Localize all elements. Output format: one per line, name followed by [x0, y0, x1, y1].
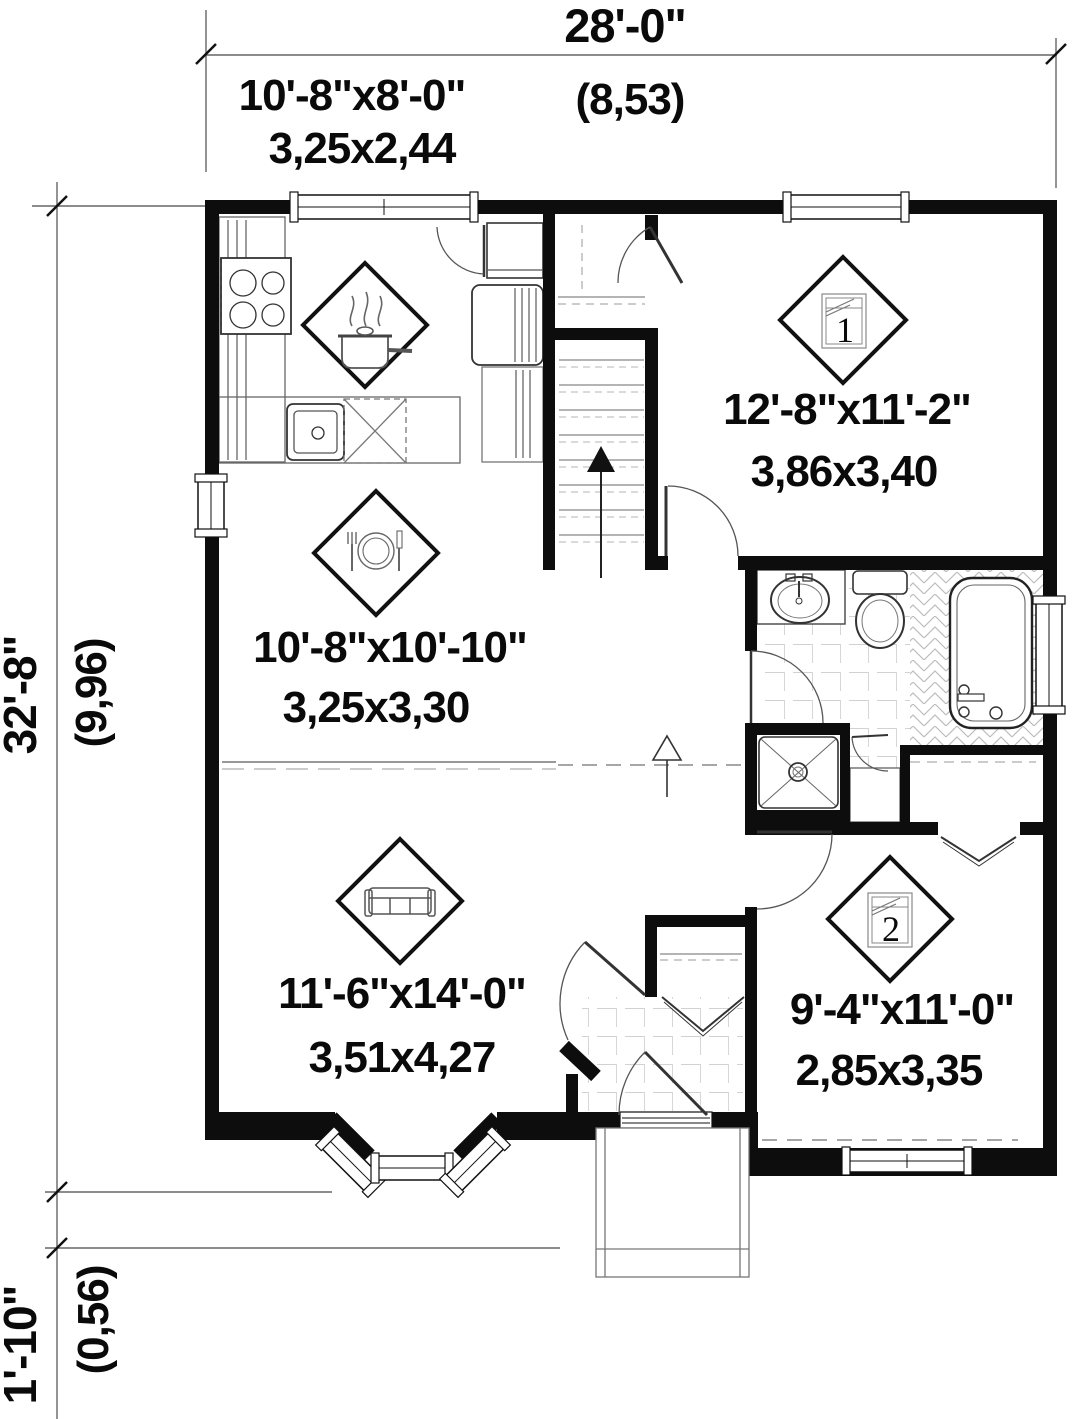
bedroom1-size-imperial: 12'-8"x11'-2" — [723, 385, 971, 434]
bedroom1-size-metric: 3,86x3,40 — [751, 447, 938, 496]
stair-wall — [645, 328, 658, 570]
bedroom2-door — [757, 832, 832, 909]
bathroom-sink — [757, 570, 845, 624]
bedroom2-room-icon: 2 — [828, 857, 952, 981]
dining-size-imperial: 10'-8"x10'-10" — [253, 623, 527, 672]
overall-width-imperial: 28'-0" — [564, 0, 686, 52]
bedroom2-size-metric: 2,85x3,35 — [796, 1046, 983, 1095]
front-door-sill — [620, 1112, 712, 1128]
stairs-up-arrow-icon — [587, 446, 615, 578]
floor-plan-page: 1 2 28'-0" (8,53) 10'-8"x8'-0 — [0, 0, 1080, 1419]
bathtub — [950, 578, 1032, 728]
kitchen-counter-right — [482, 367, 543, 462]
floor-plan-drawing: 1 2 28'-0" (8,53) 10'-8"x8'-0 — [0, 0, 1080, 1419]
overall-depth-imperial: 32'-8" — [0, 636, 46, 755]
shower — [757, 735, 840, 810]
bedroom1-window — [783, 192, 909, 222]
pantry-cabinet — [487, 223, 543, 278]
kitchen-sink — [287, 404, 344, 460]
kitchen-counter-left — [219, 217, 285, 462]
kitchen-partition-wall — [543, 203, 555, 570]
overall-width-metric: (8,53) — [576, 75, 685, 124]
dining-room-icon — [314, 491, 438, 615]
kitchen-window — [290, 192, 478, 222]
refrigerator — [472, 285, 543, 365]
entry-closet-wall — [645, 915, 757, 927]
bathroom-wall — [738, 556, 1043, 570]
bedroom1-door — [666, 486, 738, 556]
bathroom-window — [1033, 596, 1065, 714]
bedroom2-closet-bifold-door — [941, 837, 1016, 866]
toilet — [853, 571, 907, 648]
dining-window — [195, 474, 227, 537]
living-room-icon — [338, 839, 462, 963]
overall-depth-metric: (9,96) — [67, 639, 116, 748]
porch-depth-metric: (0,56) — [69, 1266, 118, 1375]
kitchen-room-icon — [303, 263, 427, 387]
exterior-wall-bottom — [205, 1112, 335, 1140]
staircase — [559, 360, 644, 578]
bedroom2-window — [842, 1147, 972, 1175]
entry-tile-floor — [582, 997, 743, 1112]
bedroom2-size-imperial: 9'-4"x11'-0" — [790, 985, 1014, 1034]
dining-size-metric: 3,25x3,30 — [283, 683, 470, 732]
bedroom1-room-icon: 1 — [780, 257, 906, 383]
front-stoop — [596, 1128, 749, 1277]
bed-number-2: 2 — [882, 909, 900, 949]
porch-depth-imperial: 1'-10" — [0, 1286, 46, 1405]
stove — [221, 258, 291, 334]
exterior-wall-left — [205, 200, 219, 1140]
kitchen-size-imperial: 10'-8"x8'-0" — [239, 71, 466, 120]
linen-closet — [850, 768, 900, 822]
living-size-imperial: 11'-6"x14'-0" — [278, 969, 526, 1018]
hall-level-arrow-icon — [653, 736, 681, 797]
kitchen-service-door — [437, 225, 484, 277]
dishwasher — [344, 399, 406, 463]
living-size-metric: 3,51x4,27 — [309, 1033, 496, 1082]
bed-number-1: 1 — [836, 310, 854, 350]
kitchen-size-metric: 3,25x2,44 — [269, 124, 457, 173]
